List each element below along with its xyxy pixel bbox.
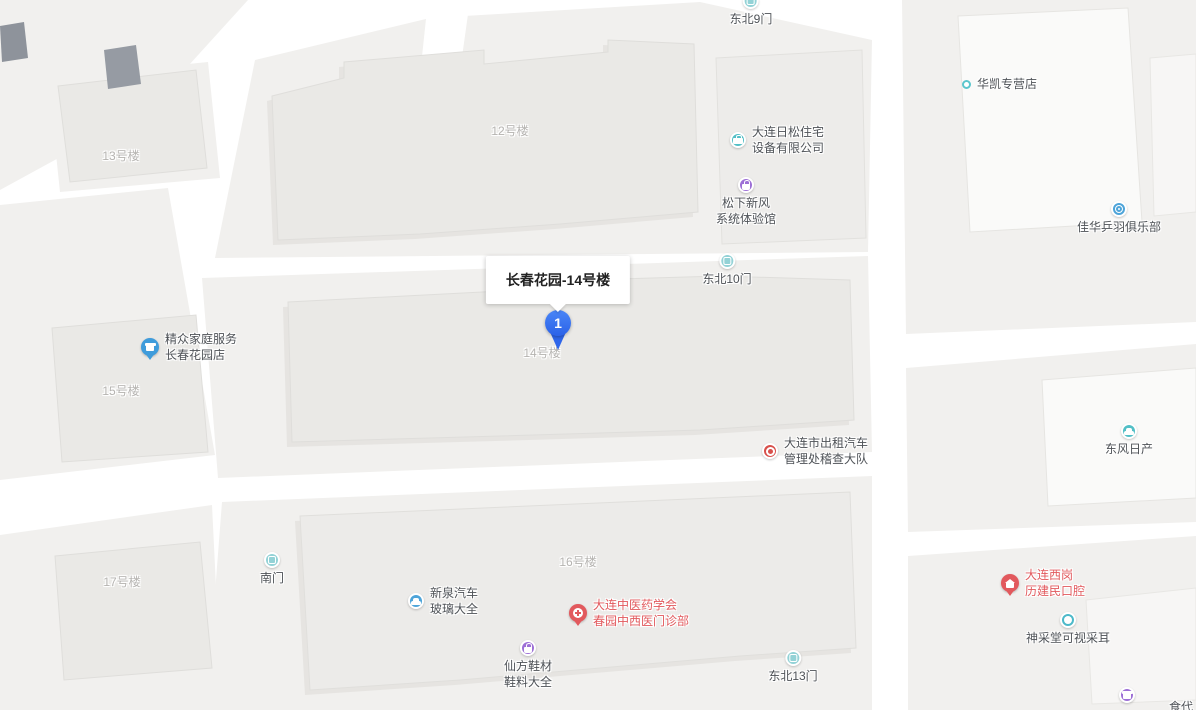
poi-label: 大连日松住宅设备有限公司	[752, 124, 824, 156]
icon-glyph	[723, 257, 731, 265]
ear-icon	[1060, 612, 1076, 628]
icon-glyph	[411, 601, 421, 605]
icon-glyph	[573, 608, 583, 618]
poi-dongfeng-nissan[interactable]: 东风日产	[1105, 423, 1153, 457]
icon-glyph	[747, 0, 755, 5]
poi-label: 16号楼	[559, 554, 596, 570]
store-drop-icon	[141, 338, 159, 356]
storefront-icon	[1119, 687, 1135, 703]
poi-xinquan-glass[interactable]: 新泉汽车玻璃大全	[408, 585, 478, 617]
poi-label: 东风日产	[1105, 441, 1153, 457]
icon-glyph	[1006, 583, 1014, 588]
gate-icon	[785, 650, 801, 666]
car-icon	[408, 593, 424, 609]
poi-label: 食代	[1169, 699, 1193, 710]
poi-gate-dongbei-13[interactable]: 东北13门	[768, 650, 817, 684]
building-right-bottom	[1086, 588, 1196, 704]
icon-glyph	[733, 138, 743, 144]
poi-label: 佳华乒羽俱乐部	[1077, 219, 1161, 235]
icon-glyph	[1115, 205, 1123, 213]
gate-icon	[264, 552, 280, 568]
poi-label: 神采堂可视采耳	[1026, 630, 1110, 646]
poi-risong-company[interactable]: 大连日松住宅设备有限公司	[730, 124, 824, 156]
poi-label: 东北13门	[768, 668, 817, 684]
bag-icon	[738, 177, 754, 193]
poi-bldg-label-16: 16号楼	[559, 554, 596, 570]
gate-icon	[719, 253, 735, 269]
bag-icon	[520, 640, 536, 656]
place-callout[interactable]: 长春花园-14号楼	[486, 256, 630, 304]
building-dark-2	[104, 45, 141, 89]
poi-bldg-label-13: 13号楼	[102, 148, 139, 164]
sports-icon	[1111, 201, 1127, 217]
poi-label: 松下新风系统体验馆	[716, 195, 776, 227]
icon-glyph	[1124, 431, 1134, 435]
building-huakai	[958, 8, 1142, 232]
car-icon	[1121, 423, 1137, 439]
poi-label: 华凯专营店	[977, 76, 1037, 92]
poi-huakai-store[interactable]: 华凯专营店	[962, 76, 1037, 92]
poi-label: 13号楼	[102, 148, 139, 164]
poi-label: 12号楼	[491, 123, 528, 139]
building-dark-1	[0, 22, 28, 62]
poi-gate-dongbei-10[interactable]: 东北10门	[702, 253, 751, 287]
poi-bldg-label-17: 17号楼	[103, 574, 140, 590]
result-pin-1[interactable]: 1	[544, 310, 572, 352]
poi-gate-south[interactable]: 南门	[260, 552, 284, 586]
poi-label: 17号楼	[103, 574, 140, 590]
icon-glyph	[742, 184, 750, 190]
icon-glyph	[766, 447, 775, 456]
briefcase-icon	[730, 132, 746, 148]
poi-shidai-store-icon[interactable]	[1119, 687, 1135, 703]
poi-xigang-dental[interactable]: 大连西岗历建民口腔	[1001, 567, 1085, 599]
gov-icon	[762, 443, 778, 459]
poi-taxi-admin[interactable]: 大连市出租汽车管理处稽查大队	[762, 435, 868, 467]
house-drop-icon	[1001, 574, 1019, 592]
poi-label: 新泉汽车玻璃大全	[430, 585, 478, 617]
poi-shencaitang-ear[interactable]: 神采堂可视采耳	[1026, 612, 1110, 646]
poi-label: 15号楼	[102, 383, 139, 399]
poi-shidai-store-label[interactable]: 食代	[1169, 699, 1193, 710]
icon-glyph	[789, 654, 797, 662]
poi-label: 大连西岗历建民口腔	[1025, 567, 1085, 599]
poi-label: 南门	[260, 570, 284, 586]
poi-jiahua-club[interactable]: 佳华乒羽俱乐部	[1077, 201, 1161, 235]
icon-glyph	[1064, 616, 1072, 624]
building-right-edge	[1150, 54, 1196, 216]
poi-label: 精众家庭服务长春花园店	[165, 331, 237, 363]
poi-bldg-label-12: 12号楼	[491, 123, 528, 139]
poi-jingzhong-service[interactable]: 精众家庭服务长春花园店	[141, 331, 237, 363]
icon-glyph	[1123, 694, 1131, 699]
dot-icon	[962, 80, 971, 89]
poi-bldg-label-15: 15号楼	[102, 383, 139, 399]
poi-gate-dongbei-9[interactable]: 东北9门	[730, 0, 773, 27]
pin-number: 1	[545, 310, 571, 336]
gate-icon	[743, 0, 759, 9]
icon-glyph	[268, 556, 276, 564]
poi-xianfang-shoes[interactable]: 仙方鞋材鞋料大全	[504, 640, 552, 690]
building-13	[58, 70, 207, 182]
poi-label: 仙方鞋材鞋料大全	[504, 658, 552, 690]
poi-label: 大连市出租汽车管理处稽查大队	[784, 435, 868, 467]
med-drop-icon	[569, 604, 587, 622]
callout-title: 长春花园-14号楼	[506, 270, 610, 290]
building-17	[55, 542, 212, 680]
poi-songxia-showroom[interactable]: 松下新风系统体验馆	[716, 177, 776, 227]
icon-glyph	[524, 647, 532, 653]
poi-label: 东北10门	[702, 271, 751, 287]
poi-label: 东北9门	[730, 11, 773, 27]
poi-label: 大连中医药学会春园中西医门诊部	[593, 597, 689, 629]
poi-zhongyiyao-clinic[interactable]: 大连中医药学会春园中西医门诊部	[569, 597, 689, 629]
icon-glyph	[146, 346, 154, 351]
map-canvas[interactable]: 东北9门华凯专营店13号楼12号楼大连日松住宅设备有限公司松下新风系统体验馆佳华…	[0, 0, 1196, 710]
